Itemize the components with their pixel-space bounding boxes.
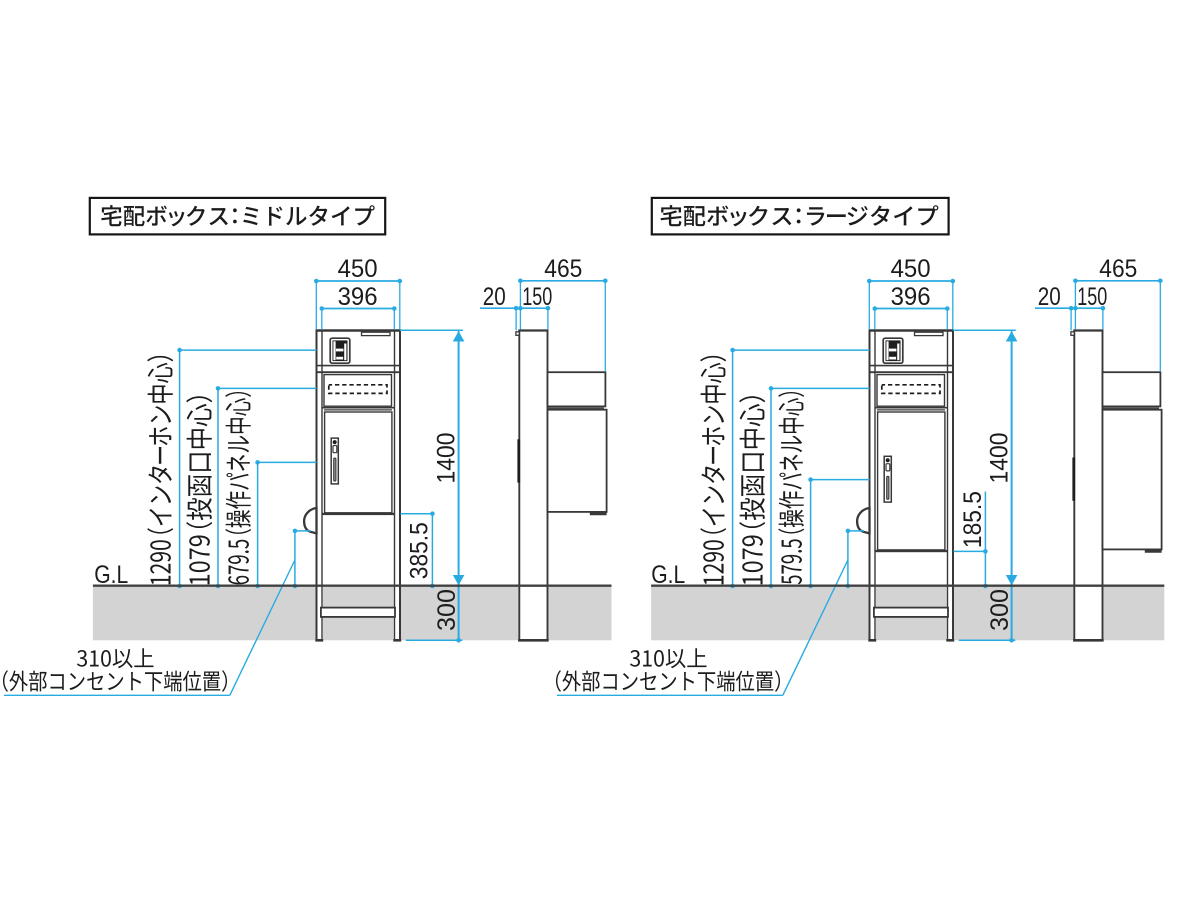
svg-text:385.5: 385.5 [406,522,434,579]
svg-text:20: 20 [483,283,506,311]
svg-text:465: 465 [544,255,582,283]
svg-text:300: 300 [433,589,461,631]
svg-text:150: 150 [522,283,552,311]
svg-text:150: 150 [1077,283,1107,311]
svg-text:G.L: G.L [651,561,685,589]
svg-text:465: 465 [1099,255,1137,283]
svg-text:300: 300 [986,589,1014,631]
svg-text:450: 450 [891,255,931,283]
svg-text:G.L: G.L [94,561,128,589]
svg-text:396: 396 [891,283,931,311]
svg-text:1400: 1400 [432,433,460,484]
svg-text:20: 20 [1038,283,1061,311]
svg-text:396: 396 [338,283,378,311]
svg-text:185.5: 185.5 [959,491,987,548]
svg-text:1400: 1400 [985,433,1013,484]
svg-text:450: 450 [338,255,378,283]
